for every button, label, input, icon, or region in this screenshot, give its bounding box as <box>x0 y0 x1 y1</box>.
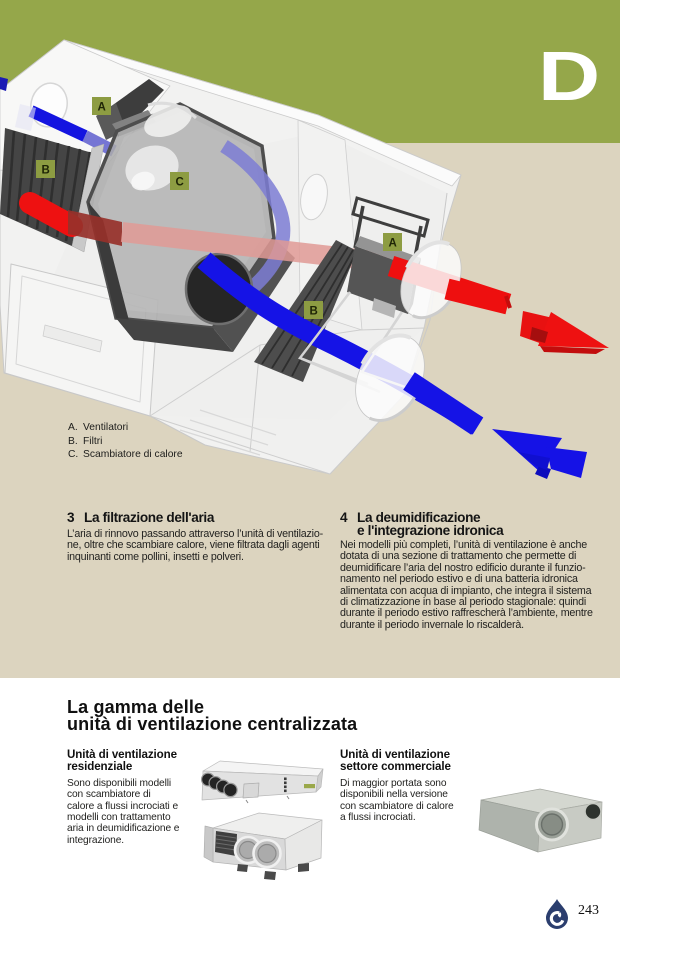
svg-text:B: B <box>42 165 50 177</box>
svg-text:C: C <box>176 177 184 189</box>
svg-text:A: A <box>98 102 106 114</box>
svg-text:B: B <box>310 306 318 318</box>
svg-text:A: A <box>389 238 397 250</box>
